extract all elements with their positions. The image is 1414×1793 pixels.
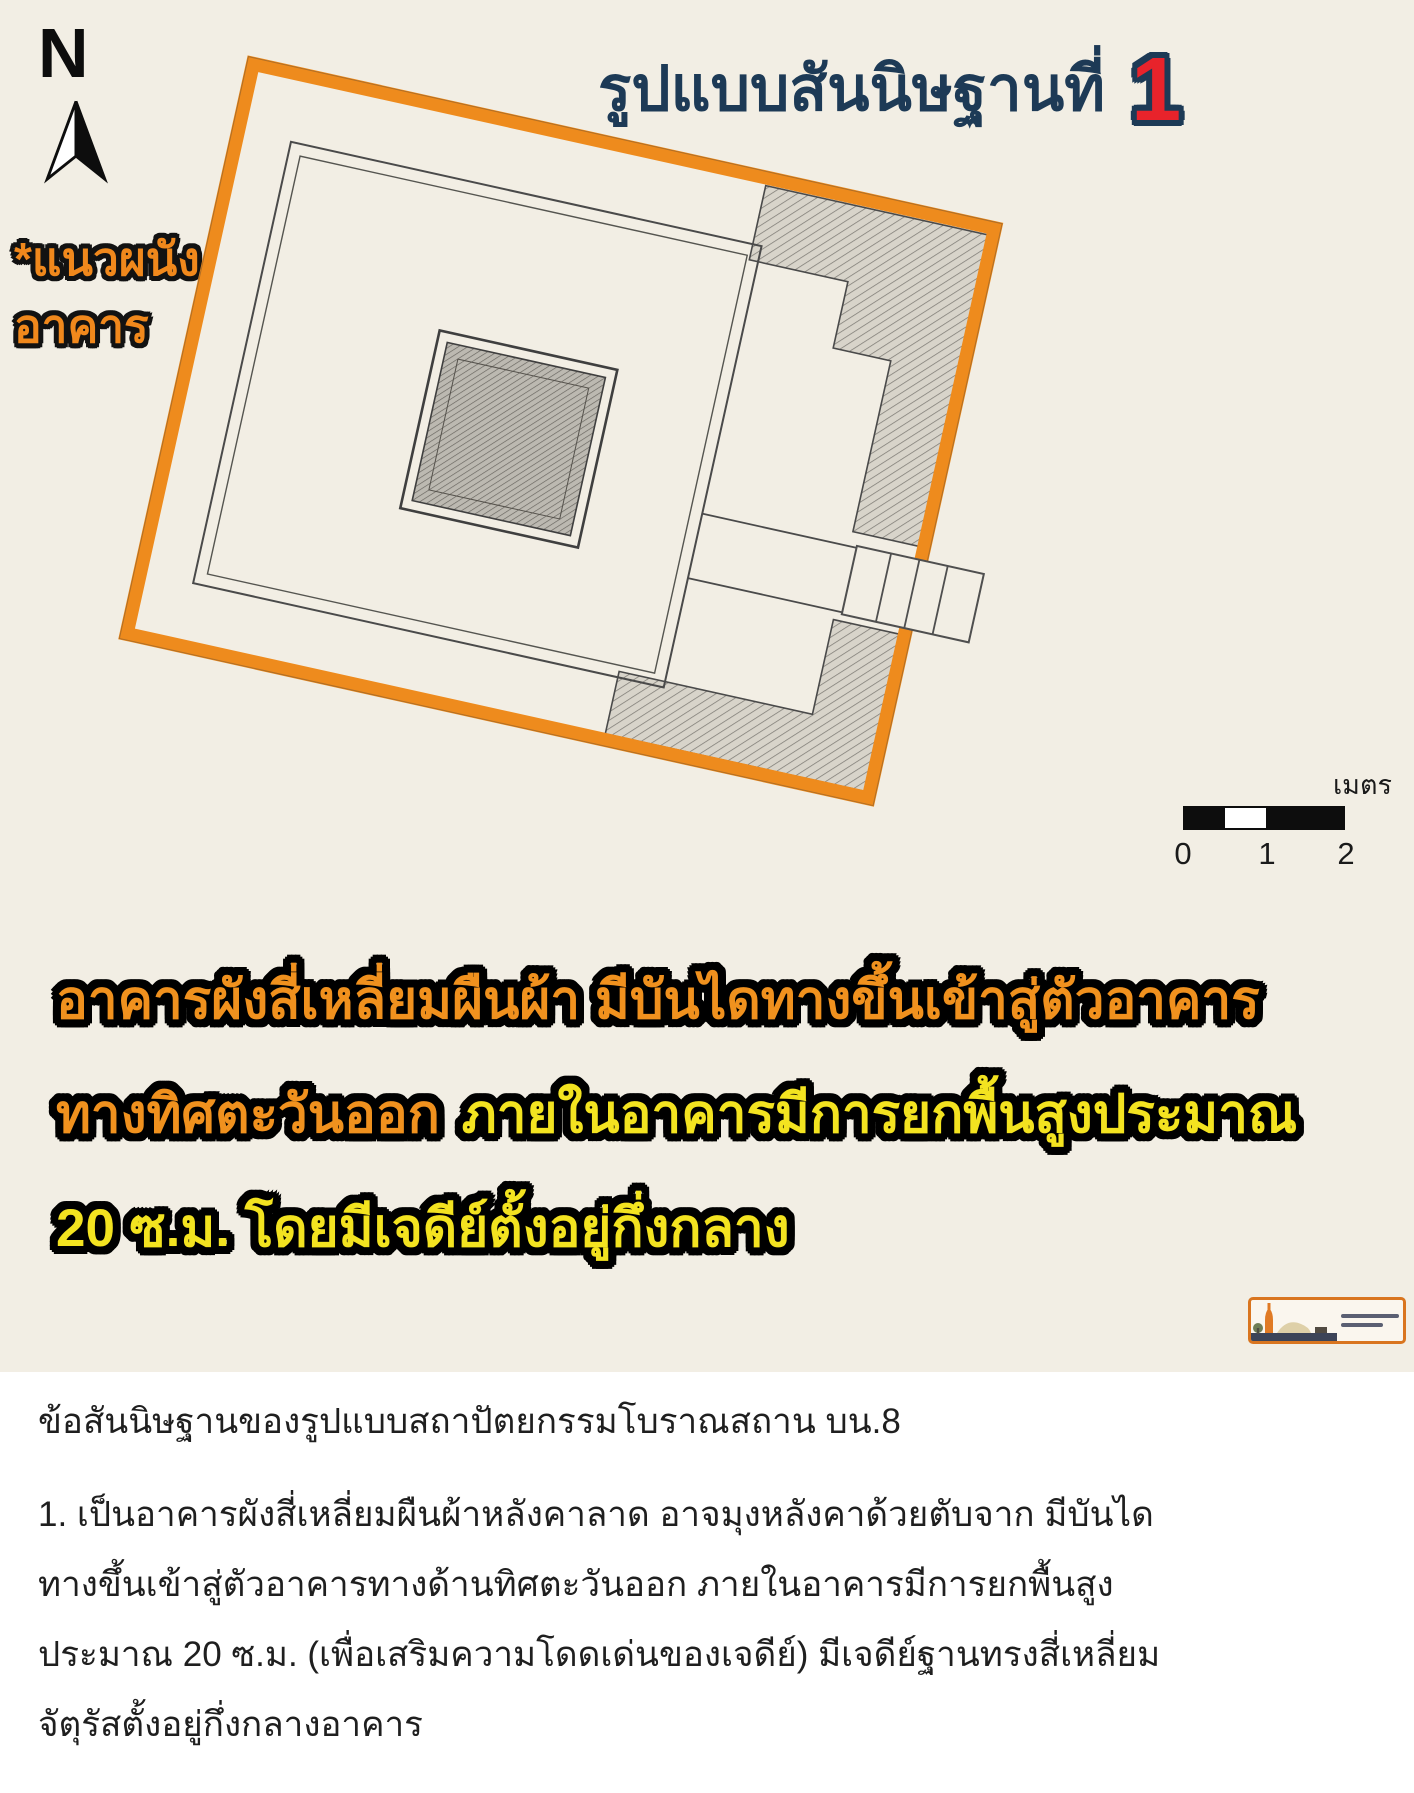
article-line: จัตุรัสตั้งอยู่กึ่งกลางอาคาร [38,1690,1160,1760]
page: N รูปแบบสันนิษฐานที่1 *แนวผนัง อาคาร [0,0,1414,1793]
logo-skyline-icon [1251,1300,1337,1341]
figure-title: รูปแบบสันนิษฐานที่1 [598,40,1398,138]
scale-tick-2: 2 [1331,836,1361,872]
scale-segment [1185,808,1225,828]
wall-note-line2: อาคาร [14,293,200,360]
central-chedi-base [400,330,617,547]
caption-line-2: ทางทิศตะวันออกภายในอาคารมีการยกพื้นสูงปร… [56,1086,1297,1144]
caption-line-3: 20 ซ.ม. โดยมีเจดีย์ตั้งอยู่กึ่งกลาง [56,1200,790,1258]
figure-plan-infographic: N รูปแบบสันนิษฐานที่1 *แนวผนัง อาคาร [0,0,1414,1372]
caption-line-2-rest: ภายในอาคารมีการยกพื้นสูงประมาณ [462,1085,1297,1144]
north-arrow-icon [40,98,112,184]
north-indicator: N [38,18,148,184]
scale-tick-0: 0 [1168,836,1198,872]
scale-segment [1266,808,1343,828]
wall-note-line1: *แนวผนัง [14,226,200,293]
hatched-wall-top-right [697,186,990,547]
figure-title-text: รูปแบบสันนิษฐานที่ [598,55,1105,124]
scale-ticks: 0 1 2 [0,836,1414,872]
article-line: ทางขึ้นเข้าสู่ตัวอาคารทางด้านทิศตะวันออก… [38,1550,1160,1620]
article-line: ประมาณ 20 ซ.ม. (เพื่อเสริมความโดดเด่นของ… [38,1620,1160,1690]
caption-line-2-highlight: ทางทิศตะวันออก [56,1085,440,1144]
article-line: 1. เป็นอาคารผังสี่เหลี่ยมผืนผ้าหลังคาลาด… [38,1480,1160,1550]
scale-bar [1183,806,1345,830]
figure-title-number: 1 [1131,50,1181,131]
logo-text-lines [1341,1314,1399,1327]
article-paragraph: 1. เป็นอาคารผังสี่เหลี่ยมผืนผ้าหลังคาลาด… [38,1480,1160,1760]
floor-plan-drawing [117,54,1067,822]
scale-tick-1: 1 [1252,836,1282,872]
article-heading: ข้อสันนิษฐานของรูปแบบสถาปัตยกรรมโบราณสถา… [38,1396,901,1449]
wall-note-label: *แนวผนัง อาคาร [14,226,200,359]
caption-line-1: อาคารผังสี่เหลี่ยมผืนผ้า มีบันไดทางขึ้นเ… [56,972,1260,1030]
north-label: N [38,18,148,88]
logo-badge [1248,1297,1406,1344]
scale-segment [1225,808,1266,828]
article-text: ข้อสันนิษฐานของรูปแบบสถาปัตยกรรมโบราณสถา… [0,1372,1414,1793]
scale-unit-label: เมตร [1333,763,1392,806]
